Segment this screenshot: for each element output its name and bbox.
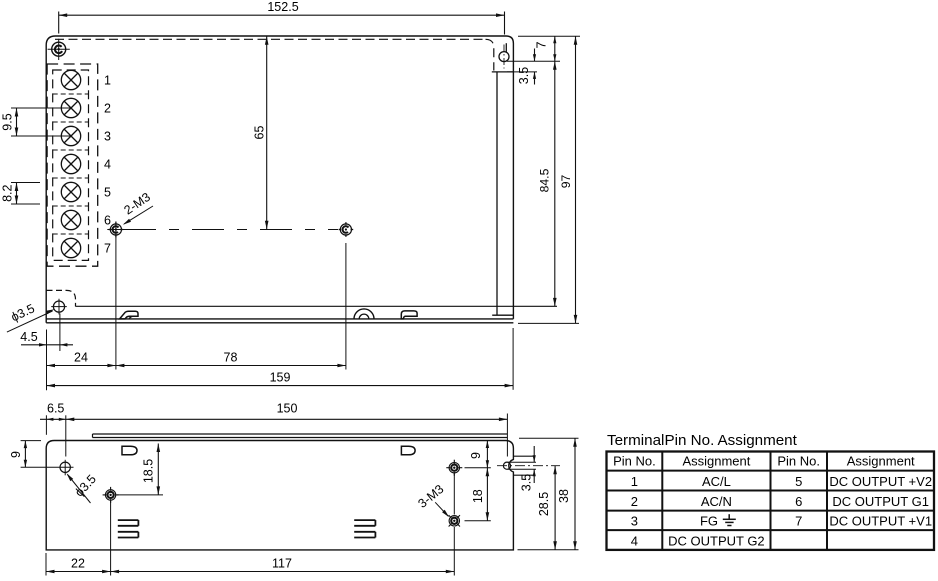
svg-text:Assignment: Assignment <box>682 453 750 468</box>
svg-text:38: 38 <box>557 489 571 503</box>
svg-text:5: 5 <box>104 186 111 200</box>
svg-text:150: 150 <box>277 402 298 416</box>
svg-text:AC/N: AC/N <box>701 494 732 509</box>
svg-text:6.5: 6.5 <box>47 402 64 416</box>
svg-text:24: 24 <box>74 350 88 364</box>
svg-text:DC OUTPUT G2: DC OUTPUT G2 <box>668 534 765 549</box>
svg-text:Assignment: Assignment <box>718 432 798 449</box>
svg-text:DC OUTPUT G1: DC OUTPUT G1 <box>832 494 929 509</box>
svg-text:DC OUTPUT +V1: DC OUTPUT +V1 <box>829 514 932 529</box>
svg-text:28.5: 28.5 <box>537 492 551 516</box>
svg-text:2: 2 <box>631 494 638 509</box>
svg-text:1: 1 <box>631 474 638 489</box>
svg-text:AC/L: AC/L <box>702 474 731 489</box>
svg-text:84.5: 84.5 <box>538 168 552 192</box>
svg-text:2: 2 <box>104 102 111 116</box>
svg-text:3: 3 <box>104 130 111 144</box>
svg-text:Pin No.: Pin No. <box>777 453 820 468</box>
svg-text:5: 5 <box>795 474 802 489</box>
svg-text:159: 159 <box>270 370 291 384</box>
svg-text:9.5: 9.5 <box>1 113 15 130</box>
svg-text:Terminal: Terminal <box>607 432 664 449</box>
svg-text:9: 9 <box>469 452 483 459</box>
svg-text:6: 6 <box>104 214 111 228</box>
svg-text:18: 18 <box>471 489 485 503</box>
svg-text:7: 7 <box>535 41 549 48</box>
svg-text:117: 117 <box>272 556 292 570</box>
svg-text:18.5: 18.5 <box>142 459 156 483</box>
svg-text:3.5: 3.5 <box>520 474 534 491</box>
svg-text:FG: FG <box>700 514 718 529</box>
svg-text:4: 4 <box>631 534 638 549</box>
svg-text:22: 22 <box>71 556 85 570</box>
svg-text:65: 65 <box>253 126 267 140</box>
svg-text:9: 9 <box>9 451 23 458</box>
svg-text:4: 4 <box>104 158 111 172</box>
svg-text:152.5: 152.5 <box>267 0 298 14</box>
svg-text:Assignment: Assignment <box>847 453 915 468</box>
svg-text:1: 1 <box>104 74 111 88</box>
svg-text:8.2: 8.2 <box>1 184 15 201</box>
svg-text:Pin No.: Pin No. <box>665 432 715 449</box>
svg-text:3: 3 <box>631 514 638 529</box>
svg-text:4.5: 4.5 <box>20 330 37 344</box>
svg-text:78: 78 <box>224 350 238 364</box>
svg-text:97: 97 <box>559 175 573 189</box>
svg-text:3.5: 3.5 <box>517 67 531 84</box>
svg-text:7: 7 <box>104 242 111 256</box>
svg-text:7: 7 <box>795 514 802 529</box>
svg-text:6: 6 <box>795 494 802 509</box>
svg-text:DC OUTPUT +V2: DC OUTPUT +V2 <box>829 474 932 489</box>
svg-text:Pin No.: Pin No. <box>613 453 656 468</box>
